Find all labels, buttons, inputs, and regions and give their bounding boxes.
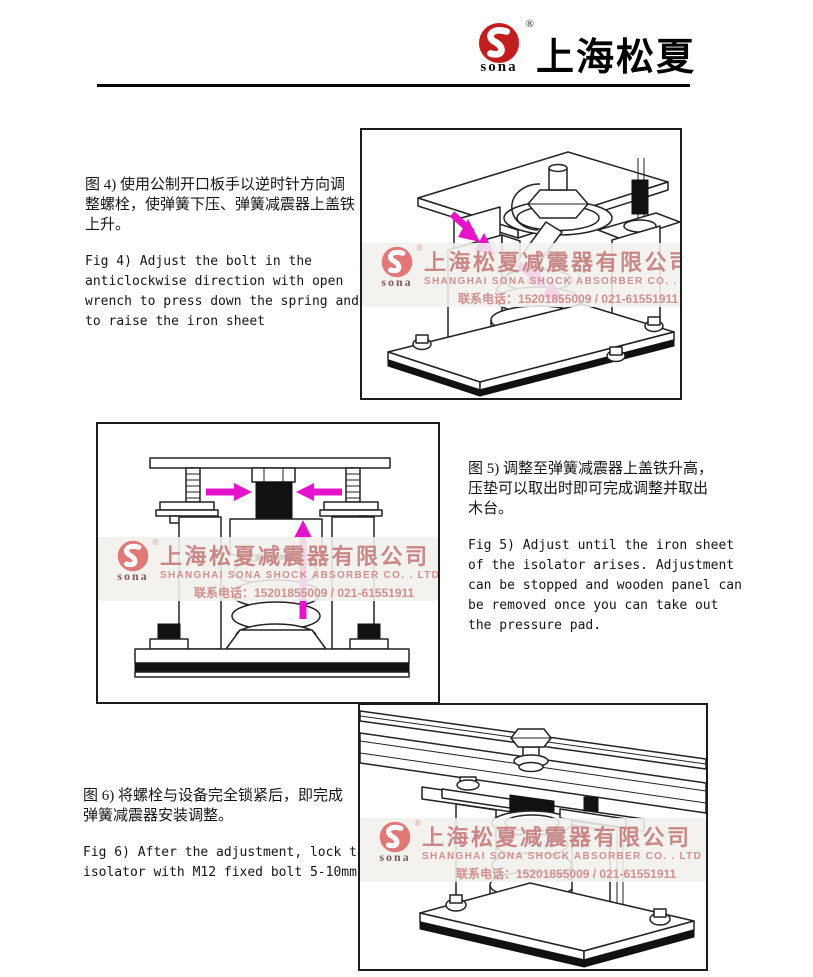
threaded-stud-right — [346, 468, 360, 502]
phone-label: 联系电话： — [194, 586, 254, 600]
watermark-phone: 联系电话：15201855009 / 021-61551911 — [422, 865, 702, 882]
fig5-text-block: 图 5) 调整至弹簧减震器上盖铁升高， 压垫可以取出时即可完成调整并取出 木台。… — [468, 459, 800, 636]
watermark-company-cn: 上海松夏减震器有限公司 — [424, 245, 682, 277]
sona-logo-icon — [379, 821, 411, 853]
sona-logo-icon — [117, 540, 149, 572]
fig5-illustration: ® sona 上海松夏减震器有限公司 SHANGHAI SONA SHOCK A… — [96, 422, 440, 704]
phone-numbers: 15201855009 / 021-61551911 — [516, 867, 676, 881]
sona-logo-text: sona — [374, 275, 420, 290]
phone-label: 联系电话： — [456, 867, 516, 881]
watermark: ® sona 上海松夏减震器有限公司 SHANGHAI SONA SHOCK A… — [98, 537, 438, 601]
sona-logo: ® sona — [472, 22, 526, 76]
sona-logo-text: sona — [110, 569, 156, 584]
watermark-sona-logo: ® sona — [110, 540, 156, 584]
watermark-company-cn: 上海松夏减震器有限公司 — [160, 539, 440, 571]
registered-mark: ® — [414, 818, 421, 828]
adjust-bolt — [252, 468, 295, 519]
fig6-caption-cn: 图 6) 将螺栓与设备完全锁紧后，即完成 弹簧减震器安装调整。 — [83, 786, 395, 826]
watermark-company-en: SHANGHAI SONA SHOCK ABSORBER CO. . LTD — [424, 276, 682, 287]
watermark-sona-logo: ® sona — [372, 821, 418, 865]
registered-mark: ® — [152, 537, 159, 547]
watermark: ® sona 上海松夏减震器有限公司 SHANGHAI SONA SHOCK A… — [362, 243, 680, 307]
watermark-phone: 联系电话：15201855009 / 021-61551911 — [424, 290, 682, 307]
base-plate — [420, 883, 694, 967]
fig4-caption-en: Fig 4) Adjust the bolt in the anticlockw… — [85, 252, 377, 332]
phone-numbers: 15201855009 / 021-61551911 — [518, 292, 678, 306]
watermark-company-cn: 上海松夏减震器有限公司 — [422, 820, 702, 852]
adjust-arrow — [296, 483, 342, 501]
fig4-illustration: ® sona 上海松夏减震器有限公司 SHANGHAI SONA SHOCK A… — [360, 128, 682, 400]
watermark-company-en: SHANGHAI SONA SHOCK ABSORBER CO. . LTD — [422, 851, 702, 862]
sona-logo-text: sona — [372, 850, 418, 865]
phone-label: 联系电话： — [458, 292, 518, 306]
registered-mark: ® — [526, 18, 534, 30]
watermark-sona-logo: ® sona — [374, 246, 420, 290]
top-plate — [150, 458, 390, 468]
watermark-phone: 联系电话：15201855009 / 021-61551911 — [160, 584, 440, 601]
fig4-caption-cn: 图 4) 使用公制开口板手以逆时针方向调 整螺栓，使弹簧下压、弹簧减震器上盖铁 … — [85, 175, 377, 235]
fig5-caption-cn: 图 5) 调整至弹簧减震器上盖铁升高， 压垫可以取出时即可完成调整并取出 木台。 — [468, 459, 800, 519]
brand-title: 上海松夏 — [536, 26, 696, 81]
fixing-bolt — [511, 729, 551, 772]
sona-logo-text: sona — [472, 59, 526, 76]
fig6-caption-en: Fig 6) After the adjustment, lock the is… — [83, 843, 395, 883]
document-page: ® sona 上海松夏 图 4) 使用公制开口板手以逆时针方向调 整螺栓，使弹簧… — [0, 0, 813, 977]
registered-mark: ® — [416, 243, 423, 253]
watermark-company-en: SHANGHAI SONA SHOCK ABSORBER CO. . LTD — [160, 570, 440, 581]
fig6-text-block: 图 6) 将螺栓与设备完全锁紧后，即完成 弹簧减震器安装调整。 Fig 6) A… — [83, 786, 395, 883]
fig6-illustration: ® sona 上海松夏减震器有限公司 SHANGHAI SONA SHOCK A… — [358, 703, 708, 971]
fig5-caption-en: Fig 5) Adjust until the iron sheet of th… — [468, 536, 800, 636]
threaded-stud-left — [186, 468, 200, 502]
phone-numbers: 15201855009 / 021-61551911 — [254, 586, 414, 600]
fig4-text-block: 图 4) 使用公制开口板手以逆时针方向调 整螺栓，使弹簧下压、弹簧减震器上盖铁 … — [85, 175, 377, 332]
sona-logo-icon — [381, 246, 413, 278]
header-divider — [97, 84, 690, 87]
watermark: ® sona 上海松夏减震器有限公司 SHANGHAI SONA SHOCK A… — [360, 818, 706, 882]
sona-logo-icon — [478, 22, 520, 64]
adjust-arrow — [206, 483, 252, 501]
